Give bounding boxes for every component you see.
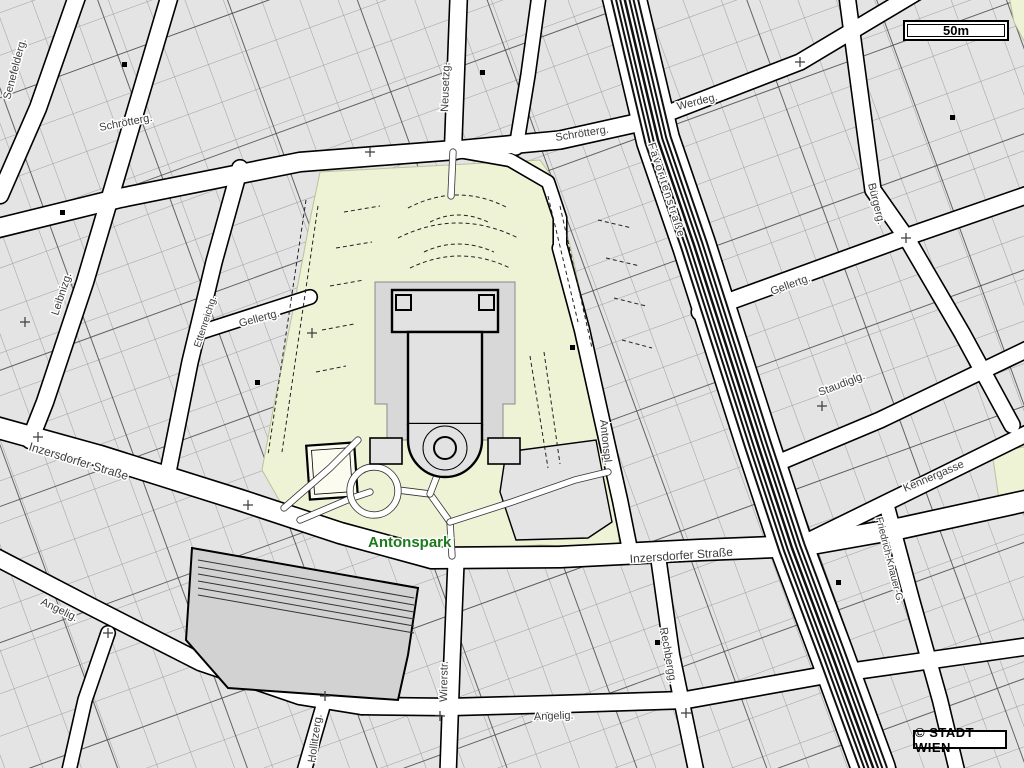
building-mark — [950, 115, 955, 120]
church-side-wing — [488, 438, 520, 464]
copyright-label: © STADT WIEN — [915, 725, 1005, 755]
building-mark — [122, 62, 127, 67]
church-side-wing — [370, 438, 402, 464]
church-nave — [408, 332, 482, 424]
park-label-antonspark: Antonspark — [368, 534, 452, 551]
church-tower — [479, 295, 494, 310]
building-mark — [480, 70, 485, 75]
city-map-canvas[interactable]: Senefelderg.Schrötterg.Schrötterg.Werdeg… — [0, 0, 1024, 768]
map-scale-bar: 50m — [903, 20, 1009, 41]
street-label-neusetzgasse: Neusetzg. — [439, 62, 453, 112]
street-label-wirerstrasse: Wirerstr. — [438, 661, 451, 702]
building-mark — [836, 580, 841, 585]
street-label-angeligasse-e: Angelig. — [534, 710, 574, 723]
building-mark — [60, 210, 65, 215]
church-tower — [396, 295, 411, 310]
building-mark — [255, 380, 260, 385]
park-path — [451, 152, 453, 196]
street-neusetzgasse — [453, 0, 459, 150]
building-mark — [570, 345, 575, 350]
scale-label: 50m — [943, 23, 969, 38]
map-drawing: Senefelderg.Schrötterg.Schrötterg.Werdeg… — [0, 0, 1024, 768]
copyright-badge: © STADT WIEN — [913, 730, 1007, 749]
